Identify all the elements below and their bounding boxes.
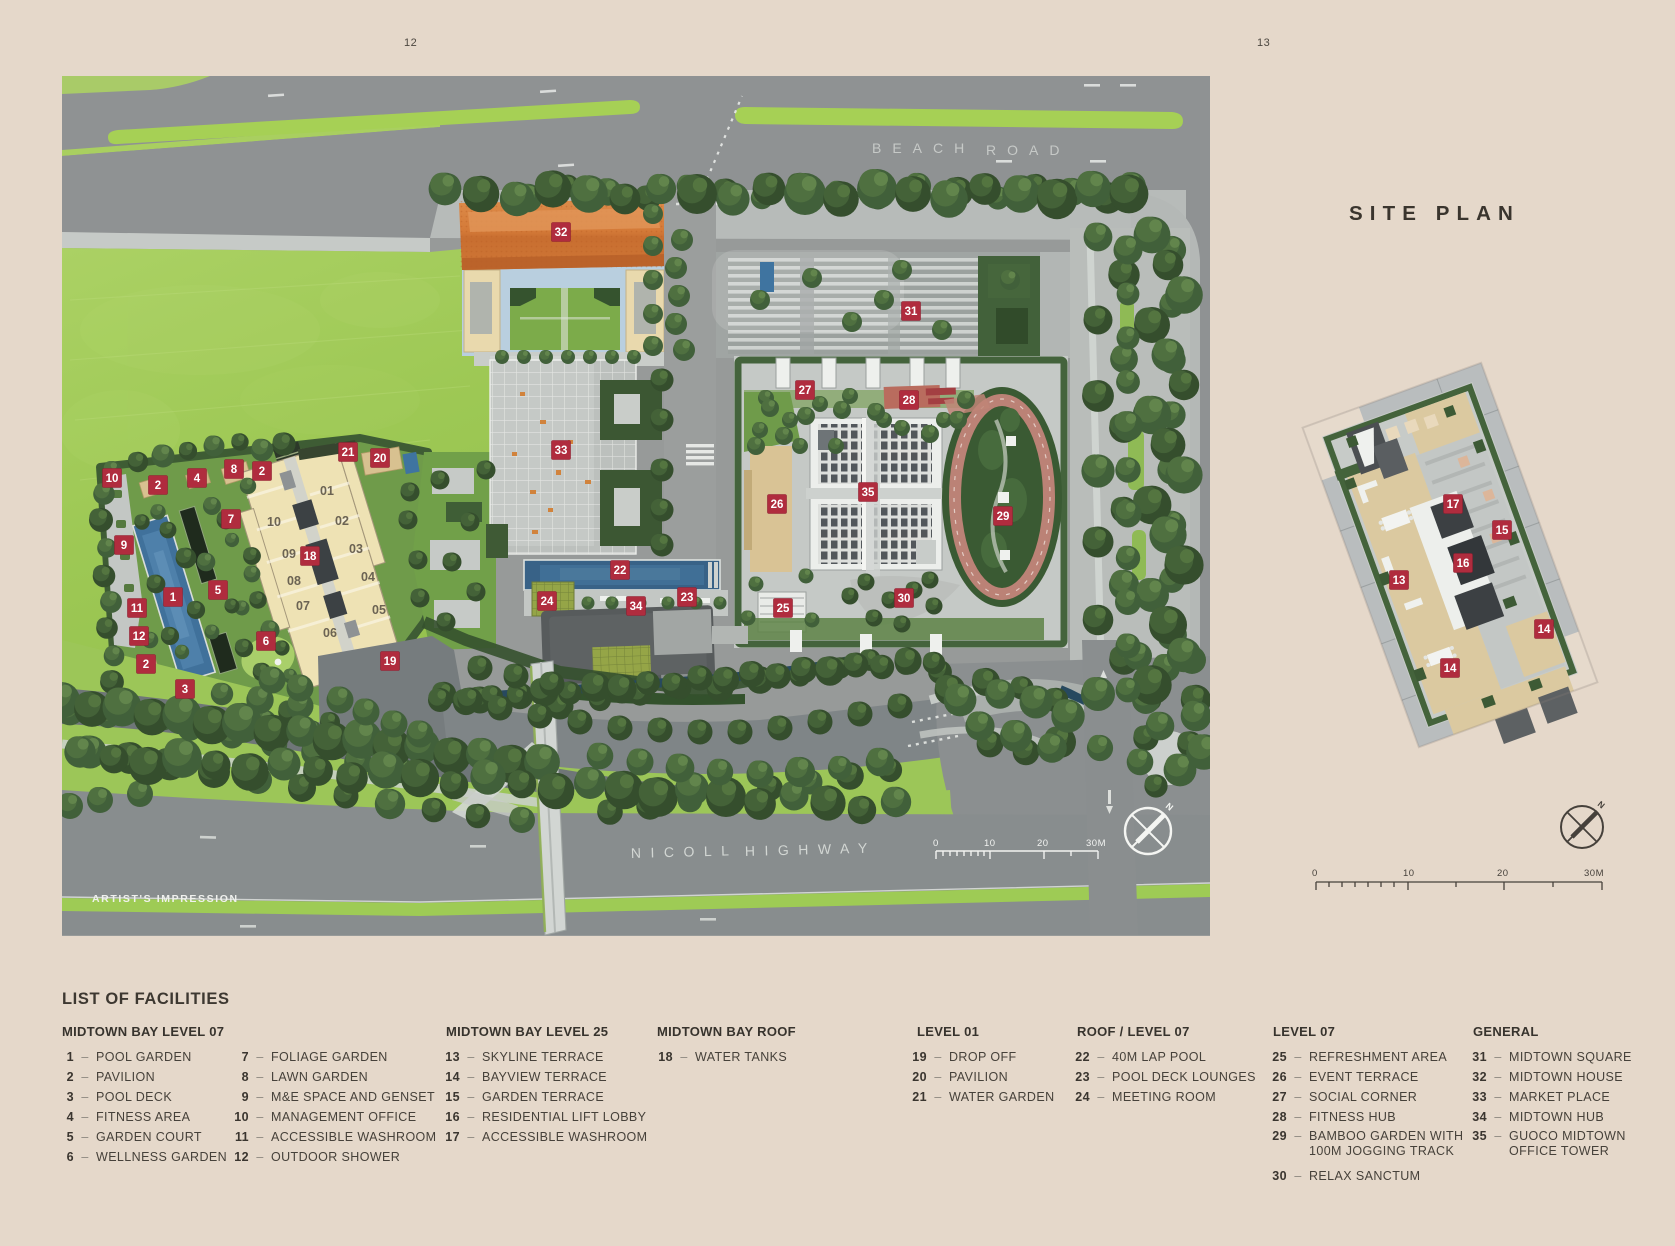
svg-text:NICOLL: NICOLL — [631, 842, 739, 861]
svg-text:06: 06 — [323, 626, 337, 640]
svg-text:10: 10 — [106, 473, 119, 485]
svg-text:12: 12 — [133, 631, 146, 643]
svg-text:8: 8 — [231, 464, 238, 476]
svg-text:14: 14 — [1444, 663, 1457, 675]
svg-text:19: 19 — [384, 656, 397, 668]
svg-text:BEACH: BEACH — [872, 140, 975, 156]
svg-text:26: 26 — [771, 499, 784, 511]
svg-text:01: 01 — [320, 484, 334, 498]
svg-text:2: 2 — [155, 480, 161, 492]
svg-text:6: 6 — [263, 636, 269, 648]
svg-text:29: 29 — [997, 511, 1010, 523]
svg-text:16: 16 — [1457, 558, 1470, 570]
svg-text:10: 10 — [1403, 868, 1415, 879]
svg-text:10: 10 — [267, 515, 281, 529]
svg-text:04: 04 — [361, 570, 375, 584]
svg-text:03: 03 — [349, 542, 363, 556]
svg-text:05: 05 — [372, 603, 386, 617]
svg-text:ARTIST'S IMPRESSION: ARTIST'S IMPRESSION — [92, 893, 239, 905]
svg-text:21: 21 — [342, 447, 355, 459]
svg-text:35: 35 — [862, 487, 875, 499]
svg-text:7: 7 — [228, 514, 234, 526]
svg-text:2: 2 — [259, 466, 265, 478]
svg-text:9: 9 — [121, 540, 127, 552]
svg-text:11: 11 — [131, 603, 144, 615]
svg-text:4: 4 — [194, 473, 201, 485]
svg-text:27: 27 — [799, 385, 812, 397]
svg-text:20: 20 — [374, 453, 387, 465]
svg-text:22: 22 — [614, 565, 627, 577]
svg-text:14: 14 — [1538, 624, 1551, 636]
svg-text:30: 30 — [898, 593, 911, 605]
svg-text:31: 31 — [905, 306, 918, 318]
svg-text:17: 17 — [1447, 499, 1460, 511]
svg-text:09: 09 — [282, 547, 296, 561]
svg-text:24: 24 — [541, 596, 554, 608]
svg-text:23: 23 — [681, 592, 694, 604]
svg-text:33: 33 — [555, 445, 568, 457]
svg-text:34: 34 — [630, 601, 643, 613]
svg-text:25: 25 — [777, 603, 790, 615]
svg-text:30M: 30M — [1086, 838, 1106, 849]
svg-text:20: 20 — [1497, 868, 1509, 879]
svg-text:08: 08 — [287, 574, 301, 588]
svg-text:N: N — [1596, 799, 1607, 811]
svg-text:32: 32 — [555, 227, 568, 239]
svg-text:20: 20 — [1037, 838, 1049, 849]
svg-text:15: 15 — [1496, 525, 1509, 537]
svg-text:13: 13 — [1393, 575, 1406, 587]
svg-text:ROAD: ROAD — [986, 142, 1070, 158]
svg-text:5: 5 — [215, 585, 222, 597]
svg-text:28: 28 — [903, 395, 916, 407]
svg-text:3: 3 — [182, 684, 188, 696]
svg-text:1: 1 — [170, 592, 177, 604]
svg-text:2: 2 — [143, 659, 149, 671]
svg-text:0: 0 — [1312, 868, 1318, 879]
svg-text:30M: 30M — [1584, 868, 1604, 879]
svg-text:07: 07 — [296, 599, 310, 613]
svg-text:10: 10 — [984, 838, 996, 849]
svg-text:18: 18 — [304, 551, 317, 563]
svg-text:02: 02 — [335, 514, 349, 528]
svg-text:0: 0 — [933, 838, 939, 849]
